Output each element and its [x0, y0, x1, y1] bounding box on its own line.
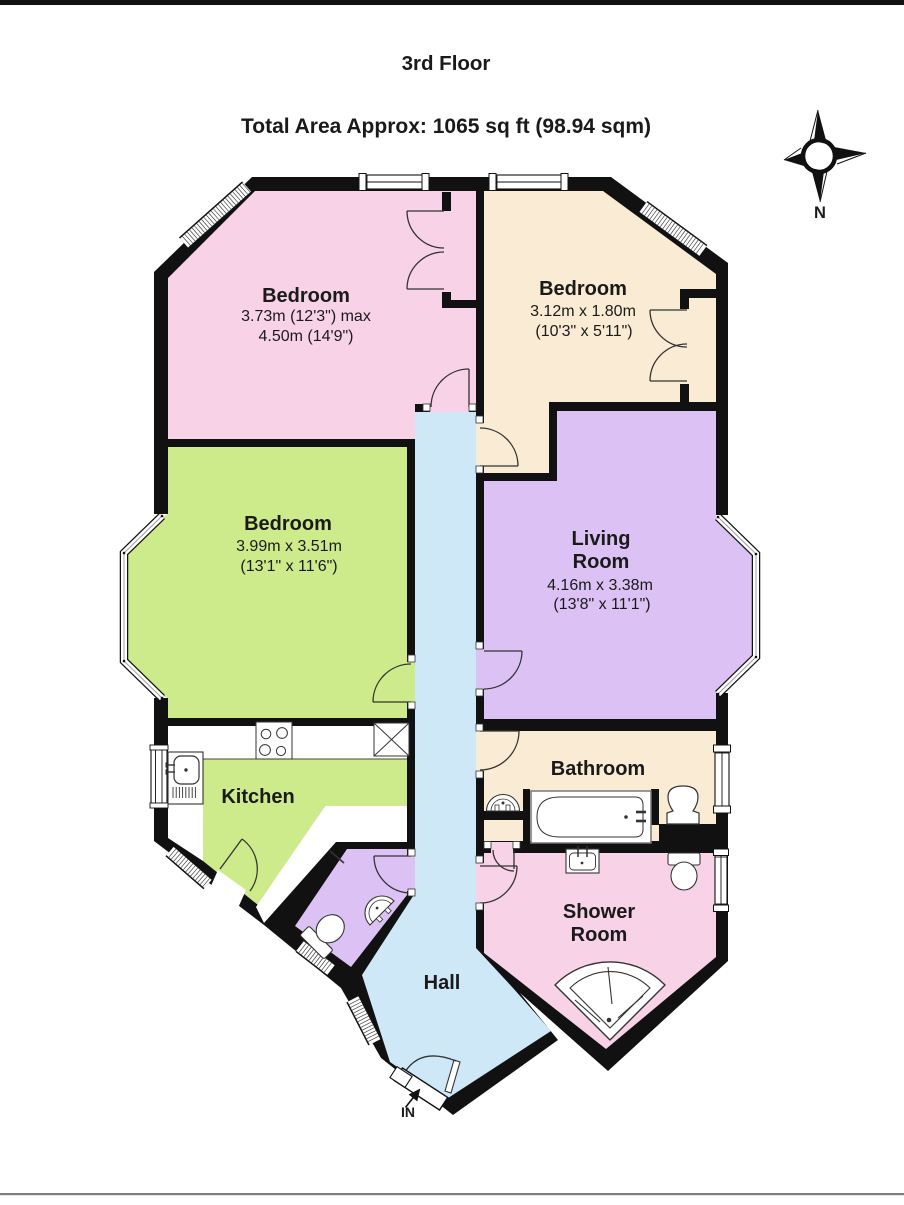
svg-text:Room: Room: [571, 924, 628, 946]
svg-text:Bedroom: Bedroom: [244, 513, 332, 535]
svg-text:(10'3" x 5'11"): (10'3" x 5'11"): [535, 323, 632, 340]
svg-text:(13'8" x 11'1"): (13'8" x 11'1"): [553, 596, 650, 613]
svg-text:4.16m x 3.38m: 4.16m x 3.38m: [547, 577, 653, 594]
svg-text:3rd Floor: 3rd Floor: [402, 52, 491, 75]
svg-text:Room: Room: [573, 551, 630, 573]
svg-text:Living: Living: [572, 528, 631, 550]
svg-text:3.99m x 3.51m: 3.99m x 3.51m: [236, 538, 342, 555]
svg-text:N: N: [814, 204, 826, 222]
svg-text:Bedroom: Bedroom: [539, 278, 627, 300]
svg-text:3.12m x 1.80m: 3.12m x 1.80m: [530, 303, 636, 320]
svg-text:IN: IN: [401, 1104, 415, 1120]
svg-text:Bathroom: Bathroom: [551, 758, 645, 780]
svg-text:Hall: Hall: [424, 972, 461, 994]
svg-text:(13'1" x 11'6"): (13'1" x 11'6"): [240, 558, 337, 575]
svg-text:Kitchen: Kitchen: [221, 786, 294, 808]
svg-text:Shower: Shower: [563, 901, 635, 923]
svg-text:4.50m (14'9"): 4.50m (14'9"): [259, 328, 354, 345]
svg-text:Bedroom: Bedroom: [262, 285, 350, 307]
svg-text:3.73m (12'3") max: 3.73m (12'3") max: [241, 308, 371, 325]
svg-text:Total Area Approx: 1065 sq ft: Total Area Approx: 1065 sq ft (98.94 sqm…: [241, 115, 651, 138]
